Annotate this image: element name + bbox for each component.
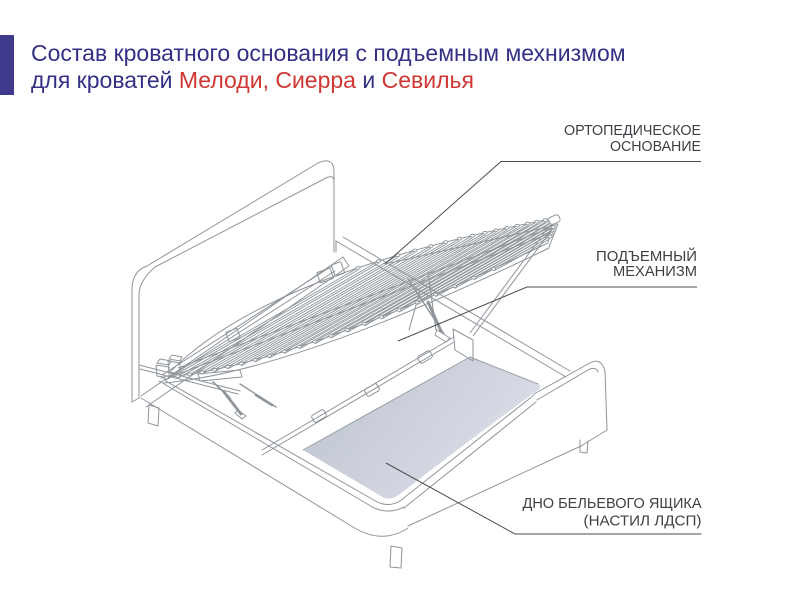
svg-text:(НАСТИЛ ЛДСП): (НАСТИЛ ЛДСП) [584, 513, 702, 530]
svg-text:ОСНОВАНИЕ: ОСНОВАНИЕ [610, 138, 701, 155]
svg-text:ОРТОПЕДИЧЕСКОЕ: ОРТОПЕДИЧЕСКОЕ [564, 122, 701, 139]
svg-text:ДНО БЕЛЬЕВОГО ЯЩИКА: ДНО БЕЛЬЕВОГО ЯЩИКА [523, 495, 702, 512]
svg-text:МЕХАНИЗМ: МЕХАНИЗМ [613, 263, 697, 280]
